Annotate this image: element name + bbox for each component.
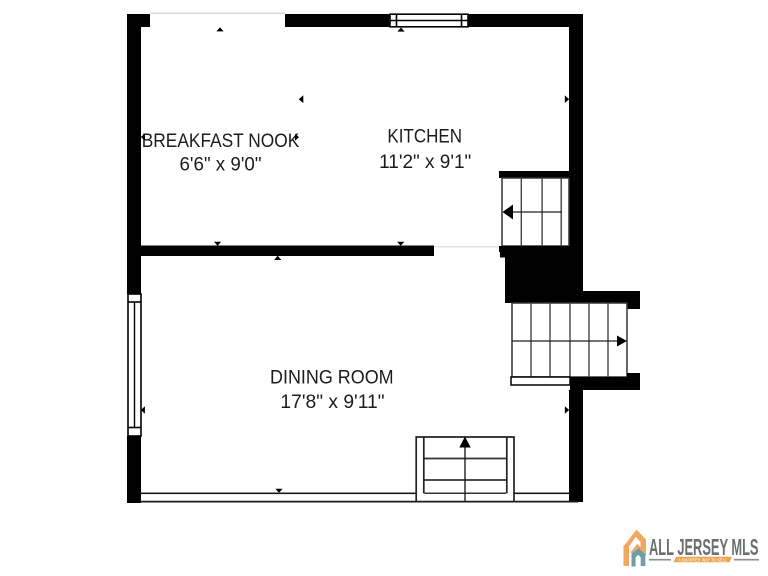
svg-text:ALL JERSEY MLS: ALL JERSEY MLS [649, 534, 759, 560]
svg-text:KITCHEN: KITCHEN [387, 126, 462, 147]
svg-text:11'2" x 9'1": 11'2" x 9'1" [379, 152, 471, 173]
svg-text:BREAKFAST NOOK: BREAKFAST NOOK [142, 131, 300, 152]
svg-text:DINING ROOM: DINING ROOM [270, 367, 394, 388]
svg-text:6'6" x 9'0": 6'6" x 9'0" [180, 155, 262, 176]
svg-text:17'8" x 9'11": 17'8" x 9'11" [280, 392, 384, 413]
svg-text:A SMARTER WAY TO SELL: A SMARTER WAY TO SELL [678, 557, 727, 562]
